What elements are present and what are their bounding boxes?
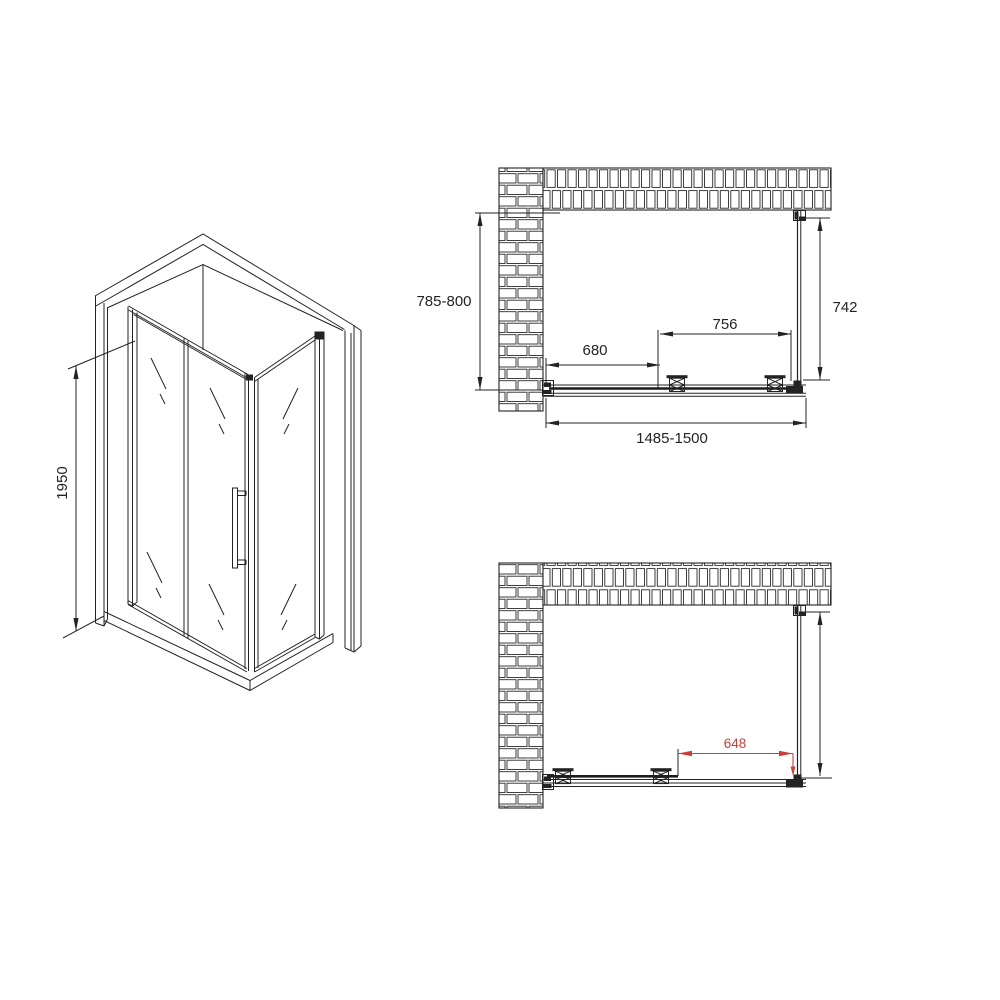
door-handle <box>233 488 247 568</box>
brick-wall-side <box>499 563 543 808</box>
technical-drawing: 1950 <box>0 0 1000 1000</box>
plan-view-door-closed: 785-800 742 756 680 <box>416 168 857 447</box>
dim-height-label: 1950 <box>54 466 71 499</box>
brick-wall-top <box>543 563 831 605</box>
dim-depth-label: 785-800 <box>416 293 471 310</box>
dim-total-width-label: 1485-1500 <box>636 430 708 447</box>
dimension-height: 1950 <box>54 341 135 638</box>
dimension-side-panel: 742 <box>803 218 858 380</box>
wall-bracket <box>794 606 806 616</box>
door-frame <box>128 306 248 638</box>
left-wall-profile <box>96 296 108 626</box>
corner-post <box>245 373 258 672</box>
dim-side-panel-label: 742 <box>832 299 857 316</box>
glass-reflections <box>147 358 298 630</box>
right-wall-profile <box>345 325 361 652</box>
wall-bracket <box>794 211 806 221</box>
plan-view-door-open: 648 <box>499 563 832 808</box>
brick-wall-side <box>499 168 543 411</box>
dimension-opening: 648 <box>678 736 795 776</box>
shower-tray <box>104 601 333 691</box>
dimension-total-width: 1485-1500 <box>546 398 806 447</box>
isometric-view: 1950 <box>54 234 361 691</box>
dimension-side-unlabeled <box>800 612 832 778</box>
dim-opening-label: 648 <box>724 736 747 751</box>
door-track <box>543 776 806 786</box>
corner-connector <box>786 775 803 788</box>
drawing-canvas: 1950 <box>0 0 1000 1000</box>
dimension-fixed-panel: 680 <box>546 342 660 384</box>
dim-door-width-label: 756 <box>712 316 737 333</box>
side-panel <box>255 332 325 673</box>
brick-wall-top <box>543 168 831 210</box>
corner-connector <box>786 381 803 394</box>
dim-fixed-panel-label: 680 <box>582 342 607 359</box>
